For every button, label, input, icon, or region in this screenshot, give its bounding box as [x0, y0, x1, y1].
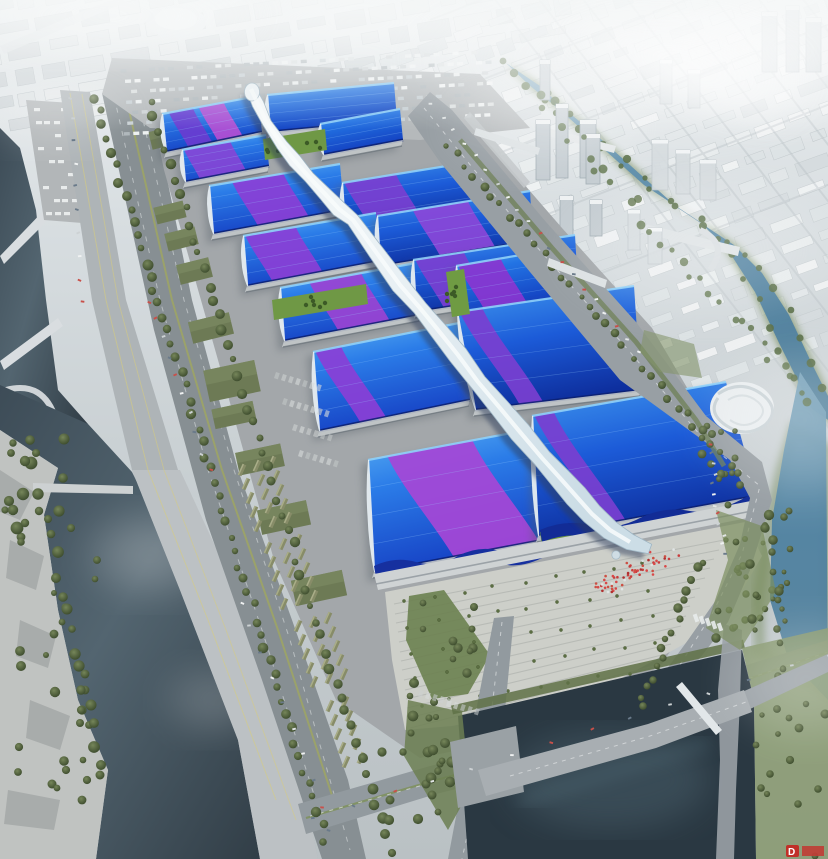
svg-text:D: D: [788, 847, 795, 858]
